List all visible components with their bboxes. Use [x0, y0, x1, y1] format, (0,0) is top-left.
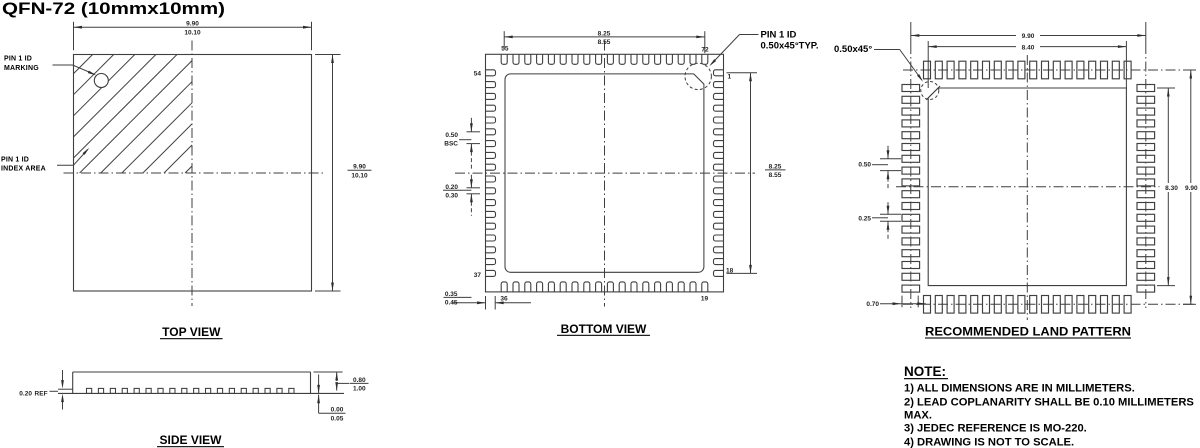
- svg-text:1) ALL DIMENSIONS ARE IN MILLI: 1) ALL DIMENSIONS ARE IN MILLIMETERS.: [904, 383, 1135, 395]
- svg-text:36: 36: [500, 296, 508, 303]
- svg-text:PIN 1 ID: PIN 1 ID: [761, 30, 797, 41]
- svg-text:8.25: 8.25: [769, 163, 782, 170]
- svg-text:2) LEAD COPLANARITY SHALL BE 0: 2) LEAD COPLANARITY SHALL BE 0.10 MILLIM…: [904, 397, 1194, 409]
- svg-text:0.20 REF: 0.20 REF: [19, 391, 47, 398]
- svg-text:0.70: 0.70: [866, 301, 879, 308]
- svg-text:BOTTOM VIEW: BOTTOM VIEW: [561, 322, 647, 336]
- svg-text:10.10: 10.10: [184, 29, 201, 36]
- svg-text:0.45: 0.45: [445, 300, 458, 307]
- svg-text:9.90: 9.90: [186, 21, 199, 28]
- svg-text:0.20: 0.20: [445, 184, 458, 191]
- svg-text:8.55: 8.55: [598, 39, 611, 46]
- svg-text:NOTE:: NOTE:: [904, 364, 946, 379]
- svg-text:0.35: 0.35: [445, 291, 458, 298]
- svg-text:55: 55: [501, 46, 509, 53]
- svg-text:0.05: 0.05: [331, 416, 344, 423]
- svg-text:0.80: 0.80: [353, 377, 366, 384]
- svg-text:0.50: 0.50: [858, 162, 871, 169]
- svg-text:0.50x45°: 0.50x45°: [834, 44, 872, 55]
- svg-text:SIDE VIEW: SIDE VIEW: [159, 433, 222, 447]
- svg-text:0.50x45°TYP.: 0.50x45°TYP.: [761, 41, 819, 52]
- svg-text:8.55: 8.55: [769, 172, 782, 179]
- svg-text:PIN 1 ID: PIN 1 ID: [4, 56, 32, 63]
- svg-text:RECOMMENDED LAND PATTERN: RECOMMENDED LAND PATTERN: [925, 324, 1131, 338]
- svg-text:0.00: 0.00: [331, 407, 344, 414]
- svg-text:8.40: 8.40: [1022, 44, 1035, 51]
- svg-text:TOP VIEW: TOP VIEW: [162, 325, 221, 339]
- svg-text:18: 18: [726, 268, 734, 275]
- svg-text:37: 37: [474, 272, 482, 279]
- svg-text:19: 19: [701, 296, 709, 303]
- svg-text:0.25: 0.25: [858, 216, 871, 223]
- svg-text:MARKING: MARKING: [4, 65, 39, 72]
- svg-text:PIN 1 ID: PIN 1 ID: [1, 157, 29, 164]
- svg-text:8.25: 8.25: [598, 30, 611, 37]
- svg-text:72: 72: [701, 47, 709, 54]
- svg-text:BSC: BSC: [444, 140, 458, 147]
- svg-text:0.50: 0.50: [445, 132, 458, 139]
- svg-text:3) JEDEC REFERENCE IS MO-220.: 3) JEDEC REFERENCE IS MO-220.: [904, 423, 1087, 435]
- svg-text:9.90: 9.90: [1185, 185, 1198, 192]
- svg-text:INDEX AREA: INDEX AREA: [1, 166, 46, 173]
- svg-text:9.90: 9.90: [1022, 33, 1035, 40]
- svg-text:1: 1: [728, 73, 732, 80]
- svg-text:0.30: 0.30: [445, 192, 458, 199]
- svg-text:9.90: 9.90: [353, 164, 366, 171]
- svg-text:8.30: 8.30: [1165, 185, 1178, 192]
- svg-text:54: 54: [474, 70, 482, 77]
- svg-text:MAX.: MAX.: [904, 410, 932, 422]
- svg-text:4) DRAWING IS NOT TO SCALE.: 4) DRAWING IS NOT TO SCALE.: [904, 436, 1074, 448]
- svg-text:QFN-72 (10mmx10mm): QFN-72 (10mmx10mm): [2, 0, 225, 18]
- svg-text:1.00: 1.00: [353, 386, 366, 393]
- svg-text:10.10: 10.10: [351, 172, 368, 179]
